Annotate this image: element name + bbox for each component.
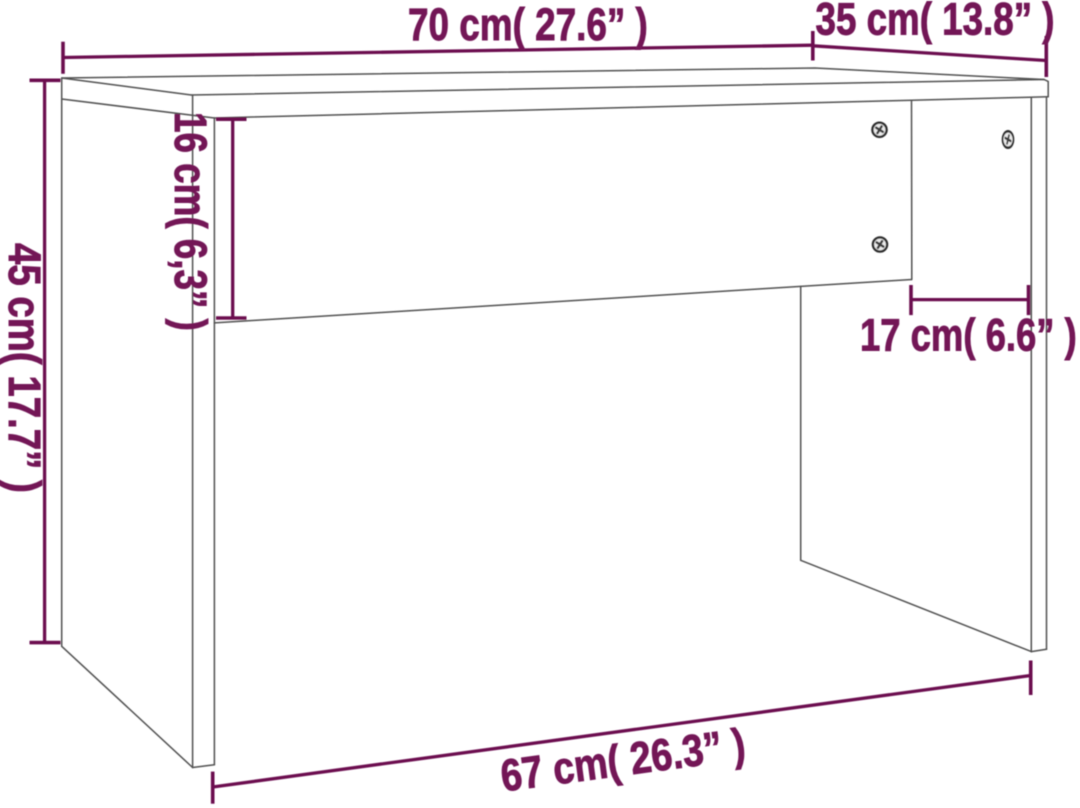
svg-text:35 cm( 13.8” ): 35 cm( 13.8” ): [816, 0, 1055, 44]
svg-text:17 cm( 6.6” ): 17 cm( 6.6” ): [860, 310, 1077, 361]
svg-text:45 cm( 17.7” ): 45 cm( 17.7” ): [0, 243, 50, 493]
svg-text:16 cm( 6,3” ): 16 cm( 6,3” ): [165, 112, 215, 331]
svg-text:70 cm( 27.6” ): 70 cm( 27.6” ): [408, 0, 648, 50]
